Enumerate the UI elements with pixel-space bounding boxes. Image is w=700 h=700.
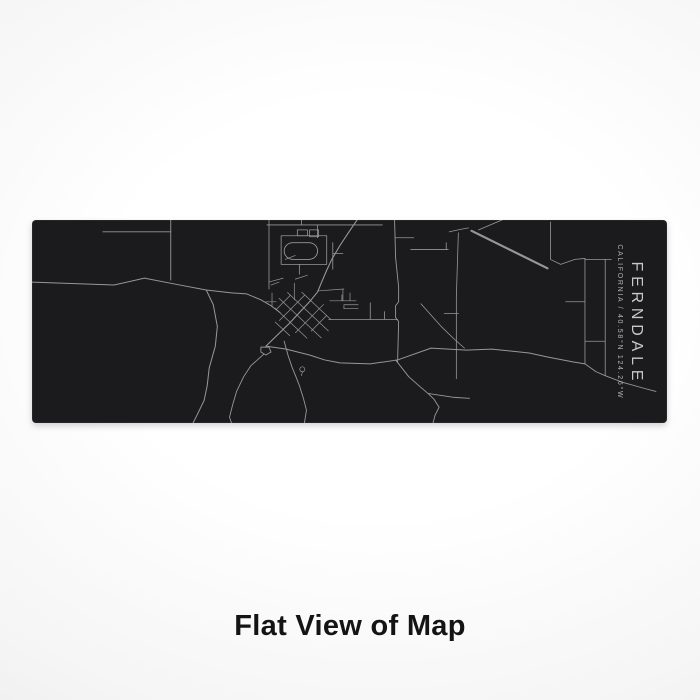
road — [318, 289, 344, 301]
engraved-map-plate: FERNDALE CALIFORNIA / 40.58°N 124.26°W — [32, 220, 667, 423]
road — [551, 222, 585, 264]
downtown-street — [311, 316, 326, 332]
roads-layer — [32, 220, 656, 423]
road — [300, 367, 305, 376]
road — [421, 304, 465, 348]
road — [479, 220, 502, 230]
downtown-street — [279, 295, 304, 321]
road — [281, 236, 327, 265]
road — [32, 278, 280, 312]
road — [193, 290, 217, 423]
road — [395, 220, 399, 362]
road — [396, 360, 470, 423]
road — [229, 347, 271, 423]
road — [269, 255, 307, 285]
city-name-label: FERNDALE — [628, 243, 644, 400]
road — [266, 220, 357, 346]
downtown-street — [275, 322, 290, 336]
downtown-grid-layer — [265, 280, 340, 352]
road — [566, 258, 605, 363]
road — [344, 305, 358, 309]
road — [266, 346, 585, 364]
image-caption: Flat View of Map — [0, 610, 700, 643]
state-coordinates-label: CALIFORNIA / 40.58°N 124.26°W — [616, 243, 623, 400]
road — [284, 243, 317, 260]
road — [329, 303, 398, 320]
road — [396, 238, 449, 250]
ferndale-map-svg — [32, 220, 667, 423]
road — [472, 231, 548, 268]
road — [585, 259, 611, 375]
map-title-block: FERNDALE CALIFORNIA / 40.58°N 124.26°W — [616, 243, 644, 400]
road — [444, 228, 468, 379]
downtown-street — [275, 308, 307, 338]
